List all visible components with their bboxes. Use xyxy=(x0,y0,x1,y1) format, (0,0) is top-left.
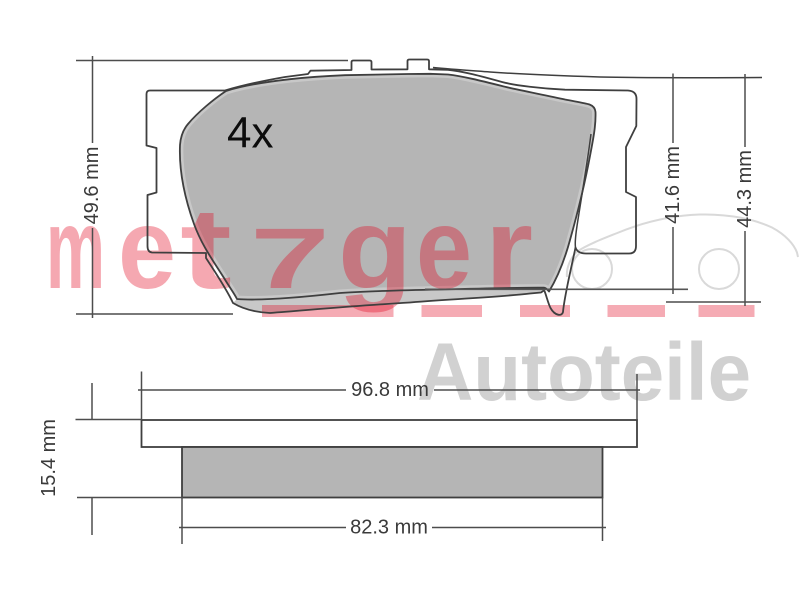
svg-text:96.8 mm: 96.8 mm xyxy=(351,379,429,401)
svg-text:49.6 mm: 49.6 mm xyxy=(81,147,103,225)
svg-text:4x: 4x xyxy=(227,109,273,158)
svg-text:82.3 mm: 82.3 mm xyxy=(350,517,428,539)
svg-text:7: 7 xyxy=(250,211,330,307)
svg-text:15.4 mm: 15.4 mm xyxy=(38,419,60,497)
svg-text:g: g xyxy=(338,185,412,313)
svg-text:Autoteile: Autoteile xyxy=(417,327,751,418)
svg-text:41.6 mm: 41.6 mm xyxy=(662,146,684,224)
svg-text:44.3 mm: 44.3 mm xyxy=(734,150,756,228)
svg-text:e: e xyxy=(416,185,472,313)
